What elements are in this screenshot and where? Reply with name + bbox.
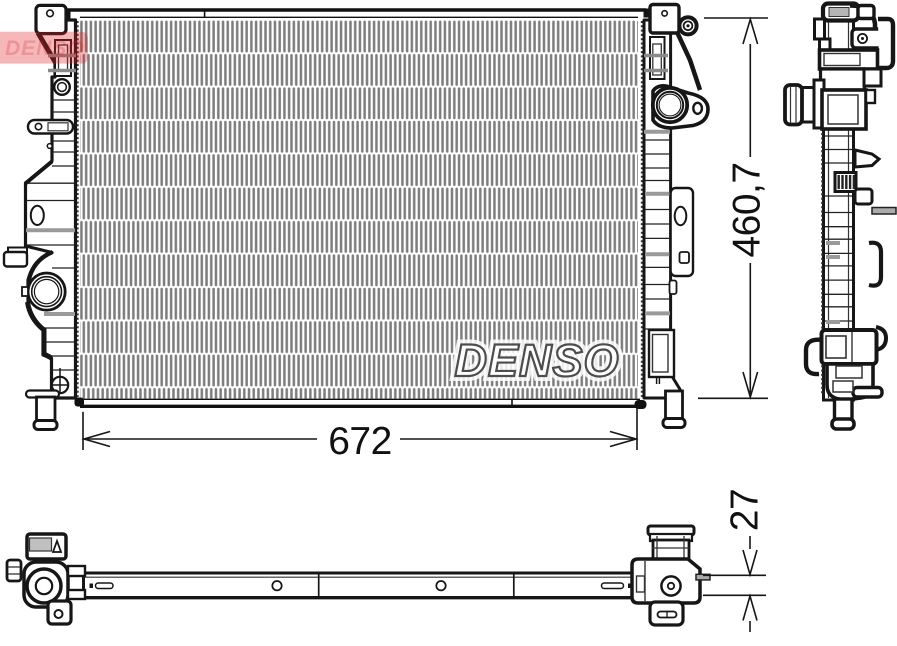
- svg-text:460,7: 460,7: [726, 162, 769, 257]
- svg-text:672: 672: [328, 420, 392, 463]
- svg-text:DENSO: DENSO: [5, 37, 85, 60]
- svg-text:27: 27: [724, 489, 767, 531]
- svg-text:DENSO: DENSO: [454, 335, 619, 386]
